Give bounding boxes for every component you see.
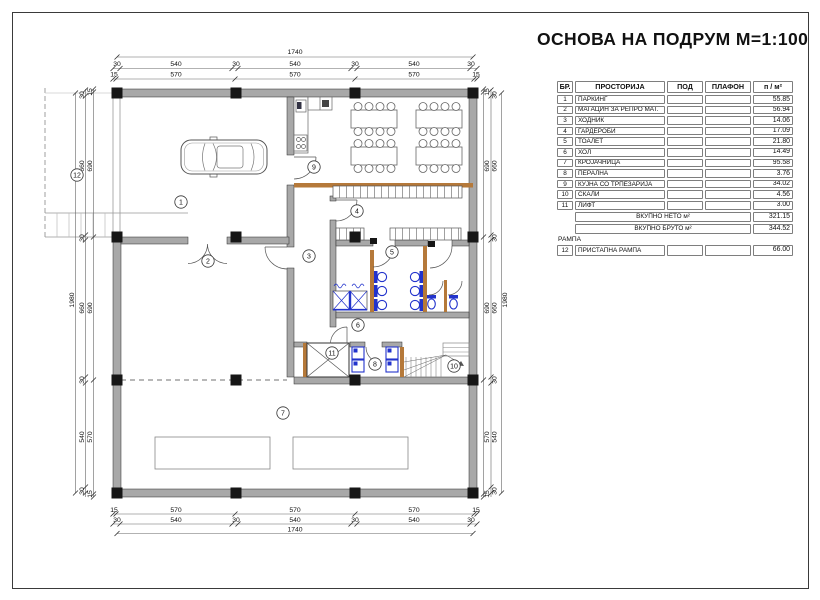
pod-cell <box>667 127 703 136</box>
row-number: 8 <box>557 169 573 178</box>
dim-label: 15 <box>484 490 491 498</box>
room-number: 11 <box>328 350 335 357</box>
column-header: ПРОСТОРИЈА <box>575 81 665 93</box>
dim-label: 570 <box>289 507 301 514</box>
room-number: 6 <box>356 322 360 329</box>
area-value: 55.85 <box>753 95 793 104</box>
dim-label: 1740 <box>287 527 302 534</box>
dim-label: 570 <box>170 72 182 79</box>
dining-tables <box>351 103 462 173</box>
dim-label: 30 <box>351 517 359 524</box>
plafon-cell <box>705 180 751 189</box>
dim-label: 1740 <box>287 49 302 56</box>
total-label: ВКУПНО БРУТО м² <box>575 224 751 234</box>
drawing-title: ОСНОВА НА ПОДРУМ М=1:100 <box>537 29 808 50</box>
dim-label: 1980 <box>69 292 76 307</box>
row-number: 4 <box>557 127 573 136</box>
room-number: 10 <box>450 363 458 370</box>
dim-label: 30 <box>79 91 86 99</box>
row-number: 11 <box>557 201 573 210</box>
dim-label: 30 <box>467 517 475 524</box>
column-header: ПЛАФОН <box>705 81 751 93</box>
dim-label: 570 <box>408 72 420 79</box>
area-value: 34.02 <box>753 180 793 189</box>
area-value: 56.94 <box>753 106 793 115</box>
dim-label: 690 <box>484 302 491 314</box>
dim-label: 570 <box>87 431 94 443</box>
pod-cell <box>667 169 703 178</box>
row-number: 10 <box>557 190 573 199</box>
room-number: 8 <box>373 361 377 368</box>
dim-label: 15 <box>87 490 94 498</box>
dim-label: 570 <box>289 72 301 79</box>
dim-label: 690 <box>87 302 94 314</box>
area-value: 17.09 <box>753 127 793 136</box>
room-name: ПЕРАЛНА <box>575 169 665 178</box>
row-number: 3 <box>557 116 573 125</box>
room-number: 12 <box>73 172 81 179</box>
room-number: 5 <box>390 249 394 256</box>
dim-label: 660 <box>492 160 499 172</box>
dim-label: 30 <box>351 61 359 68</box>
pod-cell <box>667 245 703 256</box>
dim-label: 660 <box>79 302 86 314</box>
dim-label: 540 <box>79 431 86 443</box>
area-value: 3.76 <box>753 169 793 178</box>
room-name: ХОЛ <box>575 148 665 157</box>
area-value: 4.56 <box>753 190 793 199</box>
pod-cell <box>667 106 703 115</box>
plafon-cell <box>705 148 751 157</box>
dim-label: 30 <box>492 91 499 99</box>
pod-cell <box>667 95 703 104</box>
car <box>181 137 267 177</box>
room-name: ХОДНИК <box>575 116 665 125</box>
dim-label: 540 <box>408 517 420 524</box>
dim-label: 540 <box>289 61 301 68</box>
garage-opening-wall <box>113 97 120 237</box>
room-number: 2 <box>206 258 210 265</box>
plafon-cell <box>705 127 751 136</box>
room-name: КУЈНА СО ТРПЕЗАРИЈА <box>575 180 665 189</box>
dim-label: 30 <box>113 61 121 68</box>
room-number: 3 <box>307 253 311 260</box>
room-name: ГАРДЕРОБИ <box>575 127 665 136</box>
total-value: 344.52 <box>753 224 793 234</box>
row-number: 1 <box>557 95 573 104</box>
pod-cell <box>667 159 703 168</box>
dim-label: 1980 <box>502 292 509 307</box>
dim-label: 30 <box>79 487 86 495</box>
dim-label: 30 <box>492 487 499 495</box>
room-number: 1 <box>179 199 183 206</box>
kitchen-counter <box>294 97 332 153</box>
dim-label: 570 <box>408 507 420 514</box>
total-value: 321.15 <box>753 212 793 222</box>
stairs <box>404 343 469 377</box>
dim-label: 540 <box>408 61 420 68</box>
dim-label: 30 <box>467 61 475 68</box>
dim-label: 15 <box>484 88 491 96</box>
dim-label: 15 <box>472 72 480 79</box>
pod-cell <box>667 137 703 146</box>
room-name: ПРИСТАПНА РАМПА <box>575 245 665 256</box>
dim-label: 30 <box>232 517 240 524</box>
room-name: СКАЛИ <box>575 190 665 199</box>
dim-label: 30 <box>492 234 499 242</box>
room-name: ЛИФТ <box>575 201 665 210</box>
row-number: 6 <box>557 148 573 157</box>
row-number: 12 <box>557 245 573 256</box>
dim-label: 15 <box>110 72 118 79</box>
area-value: 21.80 <box>753 137 793 146</box>
plafon-cell <box>705 95 751 104</box>
dim-label: 30 <box>492 376 499 384</box>
dim-label: 690 <box>484 160 491 172</box>
area-value: 3.00 <box>753 201 793 210</box>
pod-cell <box>667 180 703 189</box>
dim-label: 570 <box>484 431 491 443</box>
area-value: 14.06 <box>753 116 793 125</box>
pod-cell <box>667 116 703 125</box>
dim-label: 690 <box>87 160 94 172</box>
dim-label: 15 <box>472 507 480 514</box>
dim-label: 30 <box>79 376 86 384</box>
plafon-cell <box>705 159 751 168</box>
room-name: КРОЈАЧНИЦА <box>575 159 665 168</box>
row-number: 2 <box>557 106 573 115</box>
room-name: ПАРКИНГ <box>575 95 665 104</box>
plafon-cell <box>705 245 751 256</box>
row-number: 7 <box>557 159 573 168</box>
column-header: ПОД <box>667 81 703 93</box>
room-name: МАГАЦИН ЗА РЕПРО МАТ. <box>575 106 665 115</box>
pod-cell <box>667 190 703 199</box>
dim-label: 30 <box>79 234 86 242</box>
pod-cell <box>667 201 703 210</box>
dim-label: 540 <box>170 61 182 68</box>
dim-label: 540 <box>289 517 301 524</box>
plafon-cell <box>705 169 751 178</box>
column-header: п / м² <box>753 81 793 93</box>
total-label: ВКУПНО НЕТО м² <box>575 212 751 222</box>
plafon-cell <box>705 106 751 115</box>
room-schedule-table: БР.ПРОСТОРИЈАПОДПЛАФОНп / м²1ПАРКИНГ55.8… <box>557 81 795 258</box>
plafon-cell <box>705 190 751 199</box>
room-number: 9 <box>312 164 316 171</box>
dim-label: 15 <box>110 507 118 514</box>
plafon-cell <box>705 137 751 146</box>
workshop-tables <box>155 437 408 469</box>
room-name: ТОАЛЕТ <box>575 137 665 146</box>
dim-label: 30 <box>232 61 240 68</box>
area-value: 14.49 <box>753 148 793 157</box>
row-number: 5 <box>557 137 573 146</box>
area-value: 95.58 <box>753 159 793 168</box>
dim-label: 15 <box>87 88 94 96</box>
dim-label: 540 <box>170 517 182 524</box>
dim-label: 570 <box>170 507 182 514</box>
pod-cell <box>667 148 703 157</box>
plafon-cell <box>705 201 751 210</box>
plafon-cell <box>705 116 751 125</box>
dim-label: 30 <box>113 517 121 524</box>
drawing-page: 1740305403054030540301557057057015155705… <box>0 0 820 600</box>
area-value: 66.00 <box>753 245 793 256</box>
dim-label: 540 <box>492 431 499 443</box>
ramp-section-label: РАМПА <box>558 236 795 243</box>
row-number: 9 <box>557 180 573 189</box>
room-number: 7 <box>281 410 285 417</box>
room-number: 4 <box>355 208 359 215</box>
column-header: БР. <box>557 81 573 93</box>
dim-label: 660 <box>492 302 499 314</box>
